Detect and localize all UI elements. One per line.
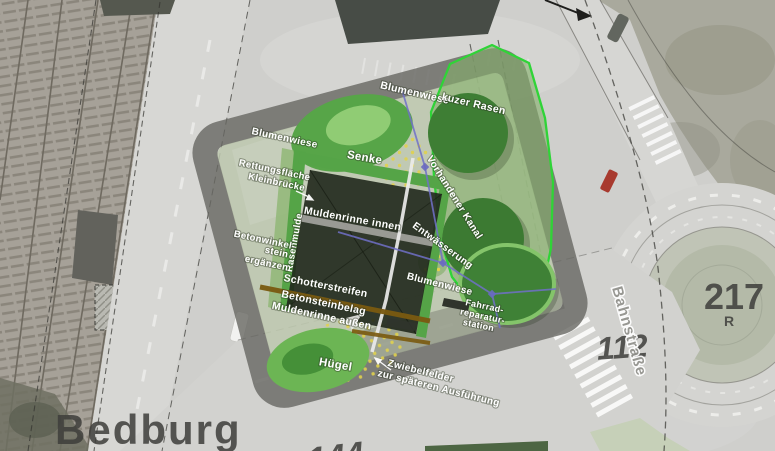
city-label: Bedburg	[55, 406, 242, 451]
map-canvas: Blumenwiese kuzer Rasen Blumenwiese Senk…	[0, 0, 775, 451]
roof-top-left	[100, 0, 175, 16]
site-plan-map: Blumenwiese kuzer Rasen Blumenwiese Senk…	[0, 0, 775, 451]
platform-shelter	[72, 210, 118, 285]
parcel-number-217: 217	[704, 276, 764, 317]
parcel-217-mark: R	[724, 313, 734, 329]
